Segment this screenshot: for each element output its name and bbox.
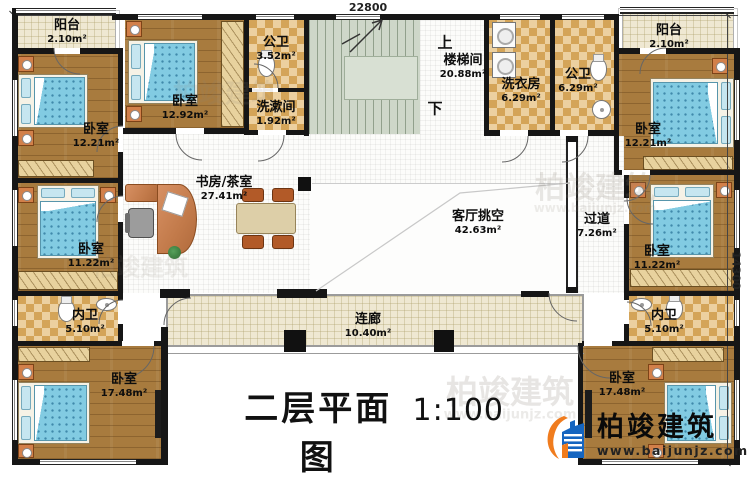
stair-up-label: 上: [437, 32, 452, 53]
balcony-railing: [620, 7, 734, 14]
window: [500, 14, 540, 20]
wardrobe: [652, 347, 724, 362]
wardrobe: [18, 160, 94, 177]
tea-chair: [272, 188, 294, 202]
room-label-bedroom-tr: 卧室12.21m²: [625, 123, 671, 149]
office-chair: [128, 208, 154, 238]
tea-table: [236, 203, 296, 234]
wardrobe: [643, 156, 733, 170]
room-label-bedroom-t2: 卧室12.92m²: [162, 95, 208, 121]
nightstand: [18, 364, 34, 380]
wardrobe: [18, 271, 118, 290]
door-opening: [118, 300, 123, 324]
company-logo: 柏竣建筑 www.baijunjz.com: [544, 412, 749, 462]
room-label-bath-tl: 公卫3.52m²: [256, 36, 295, 62]
wall-segment: [161, 327, 168, 465]
wall-cap: [566, 136, 578, 142]
column: [298, 177, 311, 191]
plant: [168, 246, 181, 259]
plan-scale: 1:100: [413, 393, 504, 428]
room-label-corridor: 连廊10.40m²: [345, 313, 391, 339]
tea-chair: [242, 235, 264, 249]
room-label-laundry: 洗衣房6.29m²: [501, 78, 540, 104]
wardrobe: [221, 21, 244, 127]
washing-machine: [492, 52, 516, 78]
column: [284, 330, 306, 352]
wall-segment: [614, 14, 619, 170]
stair-landing: [344, 56, 418, 100]
nightstand: [18, 130, 34, 146]
door-opening: [258, 130, 286, 135]
window: [12, 300, 18, 326]
window: [336, 14, 380, 20]
nightstand: [100, 187, 116, 203]
company-name: 柏竣建筑: [597, 412, 749, 443]
desk-return: [125, 184, 159, 202]
bed: [18, 74, 88, 128]
room-label-bedroom-ml: 卧室11.22m²: [68, 243, 114, 269]
wall-segment: [160, 289, 190, 298]
wall-segment: [277, 289, 327, 298]
door-opening: [500, 130, 528, 136]
washing-machine: [492, 22, 516, 48]
nightstand: [712, 58, 728, 74]
door-opening: [176, 128, 204, 134]
stair-down-label: 下: [427, 98, 442, 119]
room-label-bath-tr: 公卫6.29m²: [558, 68, 597, 94]
room-label-balcony-tr: 阳台2.10m²: [649, 24, 688, 50]
window: [734, 80, 740, 140]
dimension-right: 14300: [730, 251, 743, 291]
door-opening: [118, 196, 123, 222]
window: [40, 459, 136, 465]
window: [12, 380, 18, 440]
corridor-edge: [166, 353, 584, 354]
column: [434, 330, 454, 352]
bed: [18, 382, 90, 444]
wall-segment: [628, 291, 738, 296]
tea-chair: [272, 235, 294, 249]
room-label-stairwell: 楼梯间20.88m²: [440, 54, 486, 80]
dimension-top: 22800: [340, 1, 396, 14]
nightstand: [648, 364, 664, 380]
room-label-bedroom-tl: 卧室12.21m²: [73, 123, 119, 149]
window: [734, 300, 740, 326]
wall-cap: [566, 287, 578, 293]
window: [256, 14, 294, 20]
window: [734, 190, 740, 248]
nightstand: [18, 444, 34, 458]
sink: [592, 100, 611, 119]
room-label-study: 书房/茶室27.41m²: [196, 176, 253, 202]
nightstand: [18, 187, 34, 203]
void-partition: [566, 142, 578, 287]
door-opening: [560, 130, 588, 136]
door-opening: [122, 341, 154, 346]
dimension-line-right: [727, 14, 728, 465]
void-edge: [312, 183, 566, 184]
room-label-ensuite-l: 内卫5.10m²: [65, 309, 104, 335]
wall-segment: [628, 341, 738, 346]
room-label-bedroom-br: 卧室17.48m²: [599, 372, 645, 398]
nightstand: [126, 21, 142, 37]
room-label-ensuite-r: 内卫5.10m²: [644, 309, 683, 335]
room-label-hallway: 过道7.26m²: [577, 213, 616, 239]
window: [562, 14, 604, 20]
room-label-bedroom-bl: 卧室17.48m²: [101, 373, 147, 399]
plan-title: 二层平面图: [238, 381, 399, 479]
room-label-washroom: 洗漱间1.92m²: [256, 101, 295, 127]
window: [12, 80, 18, 136]
nightstand: [630, 182, 646, 198]
wall-segment: [12, 291, 122, 296]
nightstand: [716, 182, 732, 198]
wall-segment: [12, 178, 120, 183]
nightstand: [126, 106, 142, 122]
door-opening: [252, 88, 278, 92]
door-opening: [624, 198, 629, 224]
window: [12, 190, 18, 246]
room-label-balcony-tl: 阳台2.10m²: [47, 19, 86, 45]
company-logo-text: 柏竣建筑 www.baijunjz.com: [597, 412, 749, 458]
wall-segment: [304, 14, 309, 136]
floor-living-void: [310, 184, 566, 293]
corridor-edge: [166, 345, 584, 347]
door-opening: [624, 300, 629, 324]
nightstand: [18, 56, 34, 72]
balcony-railing: [16, 8, 116, 15]
corridor-edge: [582, 296, 584, 346]
wall-segment: [550, 14, 555, 132]
door-opening: [622, 170, 650, 175]
title-block: 二层平面图 1:100 本层建筑面积：268.20m² 层高：3.3m: [238, 381, 504, 482]
company-url: www.baijunjz.com: [597, 443, 749, 458]
company-logo-icon: [544, 412, 590, 462]
room-label-bedroom-mr: 卧室11.22m²: [634, 245, 680, 271]
wardrobe: [18, 347, 90, 362]
room-label-living-void: 客厅挑空42.63m²: [452, 210, 504, 236]
wall-segment: [521, 291, 549, 297]
floor-void-band: [310, 134, 566, 184]
floor-plan: 阳台2.10m² 卧室12.21m² 卧室12.92m² 公卫3.52m² 洗漱…: [0, 0, 750, 482]
door-opening: [584, 341, 612, 346]
wall-segment: [244, 14, 249, 134]
wardrobe: [630, 269, 732, 287]
door-opening: [54, 48, 80, 54]
window: [138, 14, 202, 20]
